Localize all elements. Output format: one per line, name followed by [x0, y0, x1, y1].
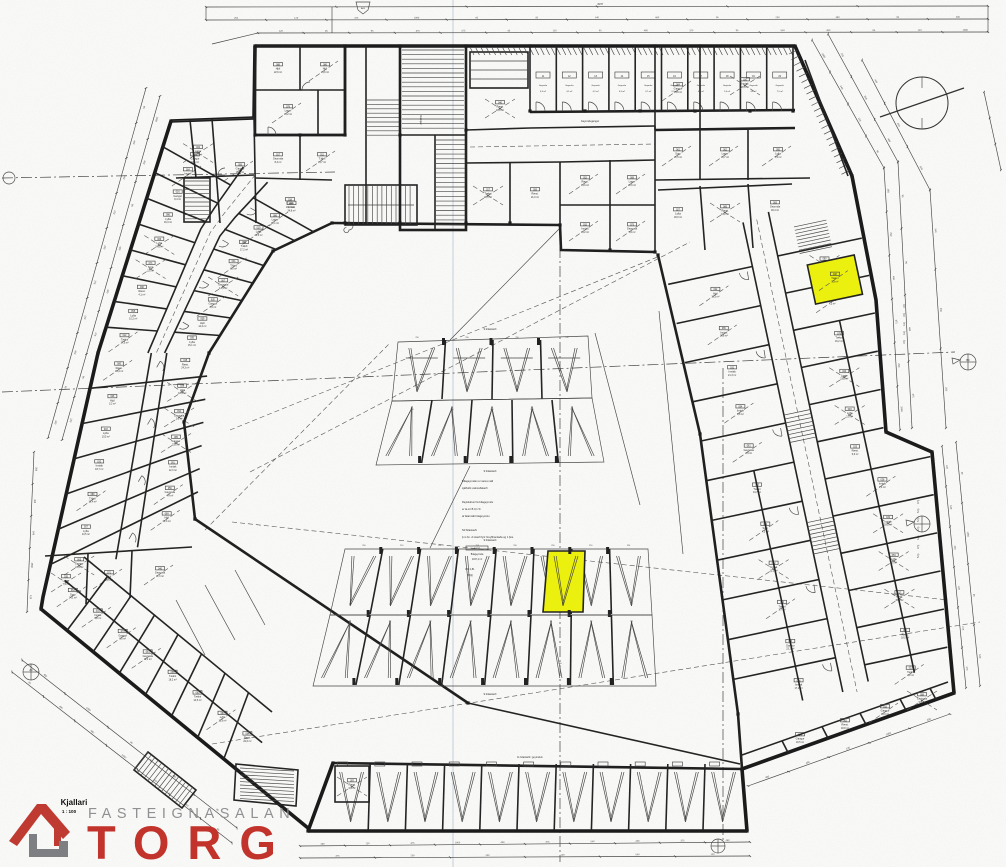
- svg-text:16,2 m²: 16,2 m²: [835, 340, 843, 343]
- svg-text:1060: 1060: [963, 29, 969, 32]
- svg-text:120: 120: [294, 17, 299, 20]
- svg-text:14,5 m²: 14,5 m²: [193, 699, 201, 702]
- svg-text:22,6 m²: 22,6 m²: [243, 740, 251, 743]
- svg-text:460: 460: [320, 843, 325, 846]
- svg-text:16,3 m²: 16,3 m²: [164, 221, 172, 224]
- svg-text:DK 2,81: DK 2,81: [465, 568, 475, 571]
- svg-text:15,4 m²: 15,4 m²: [115, 370, 123, 373]
- svg-text:375: 375: [545, 841, 550, 844]
- svg-text:7,5 m²: 7,5 m²: [777, 90, 783, 93]
- svg-text:5,0 m²: 5,0 m²: [724, 90, 730, 93]
- svg-text:12,3 m²: 12,3 m²: [770, 569, 778, 572]
- svg-text:18,3 m²: 18,3 m²: [178, 392, 186, 395]
- svg-text:14,5 m²: 14,5 m²: [82, 533, 90, 536]
- svg-text:460: 460: [500, 841, 505, 844]
- svg-text:18,2 m²: 18,2 m²: [169, 679, 177, 682]
- svg-text:375: 375: [461, 29, 466, 32]
- svg-text:6,6 m²: 6,6 m²: [852, 453, 859, 456]
- svg-text:14,1 m²: 14,1 m²: [69, 597, 77, 600]
- svg-text:23,5 m²: 23,5 m²: [840, 378, 848, 381]
- svg-text:Geymsla: Geymsla: [697, 85, 706, 87]
- svg-text:13,9 m²: 13,9 m²: [674, 91, 682, 94]
- svg-text:14,5 m²: 14,5 m²: [219, 287, 227, 290]
- svg-text:120: 120: [560, 854, 565, 857]
- svg-text:24,6 m²: 24,6 m²: [321, 71, 329, 74]
- svg-text:4,2 m²: 4,2 m²: [593, 90, 599, 93]
- svg-text:Geymsla: Geymsla: [591, 85, 600, 87]
- svg-text:18,7 m²: 18,7 m²: [95, 468, 103, 471]
- svg-text:460: 460: [725, 839, 730, 842]
- svg-text:Kjallari: Kjallari: [61, 798, 88, 807]
- svg-text:250: 250: [410, 854, 415, 857]
- svg-text:18,8 m²: 18,8 m²: [841, 727, 849, 730]
- svg-text:A0: A0: [29, 668, 33, 672]
- svg-text:540: 540: [590, 840, 595, 843]
- svg-text:21,3 m²: 21,3 m²: [163, 520, 171, 523]
- svg-text:af fatarmáli bílageymslu: af fatarmáli bílageymslu: [462, 514, 490, 518]
- svg-text:4,6 m²: 4,6 m²: [750, 90, 756, 93]
- svg-text:14,7 m²: 14,7 m²: [318, 161, 326, 164]
- svg-text:24,8 m²: 24,8 m²: [287, 210, 295, 213]
- svg-text:16,2 m²: 16,2 m²: [581, 231, 589, 234]
- svg-text:24,5 m²: 24,5 m²: [254, 234, 262, 237]
- svg-text:1060: 1060: [414, 16, 420, 19]
- svg-text:1047,4 m²: 1047,4 m²: [472, 558, 483, 561]
- svg-text:19,8 m²: 19,8 m²: [720, 335, 728, 338]
- svg-text:Geymsla: Geymsla: [749, 85, 758, 87]
- svg-text:540: 540: [635, 853, 640, 856]
- svg-text:120: 120: [365, 842, 370, 845]
- svg-text:TORG: TORG: [87, 816, 294, 867]
- svg-text:460: 460: [956, 16, 961, 19]
- svg-text:460: 460: [836, 16, 841, 19]
- svg-text:Geymslugangur: Geymslugangur: [581, 119, 599, 123]
- svg-text:14,2 m²: 14,2 m²: [198, 325, 206, 328]
- svg-text:4,1 m²: 4,1 m²: [139, 294, 146, 297]
- svg-text:B0: B0: [966, 358, 970, 362]
- svg-text:8,4 m²: 8,4 m²: [174, 198, 181, 201]
- svg-text:Geymsla: Geymsla: [618, 85, 627, 87]
- svg-text:460: 460: [655, 16, 660, 19]
- svg-text:er la-m² B 0,1 %: er la-m² B 0,1 %: [462, 507, 481, 511]
- svg-text:19,0 m²: 19,0 m²: [881, 713, 889, 716]
- svg-text:17,2 m²: 17,2 m²: [795, 687, 803, 690]
- svg-text:11,4 m²: 11,4 m²: [144, 658, 152, 661]
- svg-text:Bílageymsla: Bílageymsla: [471, 554, 484, 556]
- svg-text:16,5 m²: 16,5 m²: [796, 741, 804, 744]
- svg-text:250: 250: [234, 17, 239, 20]
- svg-text:Rampur: Rampur: [419, 115, 423, 124]
- svg-text:10,1 m²: 10,1 m²: [236, 171, 244, 174]
- svg-text:22,6 m²: 22,6 m²: [628, 184, 636, 187]
- svg-text:375: 375: [680, 839, 685, 842]
- svg-text:Geymsla: Geymsla: [723, 85, 732, 87]
- svg-text:8,4 m²: 8,4 m²: [275, 161, 282, 164]
- svg-text:540: 540: [595, 16, 600, 19]
- svg-text:18,0 m²: 18,0 m²: [901, 637, 909, 640]
- svg-text:12,1 m²: 12,1 m²: [271, 222, 279, 225]
- svg-text:13,7 m²: 13,7 m²: [753, 491, 761, 494]
- svg-text:120: 120: [918, 29, 923, 32]
- svg-text:460: 460: [644, 29, 649, 32]
- svg-text:11,3 m²: 11,3 m²: [156, 575, 164, 578]
- svg-text:10,2 m²: 10,2 m²: [129, 318, 137, 321]
- svg-text:13,2 m²: 13,2 m²: [721, 213, 729, 216]
- svg-text:375: 375: [410, 842, 415, 845]
- svg-text:250: 250: [485, 854, 490, 857]
- svg-text:21,3 m²: 21,3 m²: [728, 374, 736, 377]
- svg-text:1060: 1060: [966, 531, 970, 537]
- svg-text:13,2 m²: 13,2 m²: [284, 113, 292, 116]
- svg-text:21,5 m²: 21,5 m²: [674, 156, 682, 159]
- svg-text:Geymsla: Geymsla: [644, 85, 653, 87]
- svg-text:460: 460: [826, 29, 831, 32]
- svg-text:11 bílastæði í geymslum: 11 bílastæði í geymslum: [517, 756, 543, 759]
- svg-text:1060: 1060: [900, 406, 903, 412]
- svg-text:11,9 m²: 11,9 m²: [219, 720, 227, 723]
- svg-text:4,3 m²: 4,3 m²: [619, 90, 625, 93]
- svg-text:14,6 m²: 14,6 m²: [581, 184, 589, 187]
- svg-text:Bílageymslan er sama máli: Bílageymslan er sama máli: [462, 479, 494, 483]
- svg-text:4,4 m²: 4,4 m²: [698, 90, 704, 93]
- svg-text:23,6 m²: 23,6 m²: [75, 566, 83, 569]
- svg-text:4,1 m²: 4,1 m²: [566, 90, 572, 93]
- svg-text:Reykluktun frá bílageymslu: Reykluktun frá bílageymslu: [462, 500, 494, 504]
- svg-text:1 : 100: 1 : 100: [62, 809, 77, 814]
- svg-text:12,3 m²: 12,3 m²: [169, 469, 177, 472]
- svg-text:F0637: F0637: [474, 548, 481, 550]
- svg-text:120: 120: [710, 853, 715, 856]
- svg-text:3,2 m²: 3,2 m²: [109, 403, 116, 406]
- svg-text:1060: 1060: [455, 841, 461, 844]
- svg-text:Geymsla: Geymsla: [776, 85, 785, 87]
- svg-text:20,5 m²: 20,5 m²: [484, 196, 492, 199]
- svg-text:1060: 1060: [30, 562, 33, 568]
- svg-text:375: 375: [354, 17, 359, 20]
- svg-text:375: 375: [335, 855, 340, 858]
- svg-text:540: 540: [781, 29, 786, 32]
- svg-text:24,6 m²: 24,6 m²: [155, 245, 163, 248]
- svg-text:21,0 m²: 21,0 m²: [531, 196, 539, 199]
- svg-text:375: 375: [689, 29, 694, 32]
- svg-text:250: 250: [635, 840, 640, 843]
- svg-text:10,5 m²: 10,5 m²: [102, 435, 110, 438]
- svg-text:6,3 m²: 6,3 m²: [540, 90, 546, 93]
- svg-text:23,1 m²: 23,1 m²: [786, 648, 794, 651]
- svg-text:Geymsla: Geymsla: [539, 85, 548, 87]
- svg-text:18,4 m²: 18,4 m²: [771, 209, 779, 212]
- svg-text:120: 120: [553, 29, 558, 32]
- svg-text:16,7 m²: 16,7 m²: [721, 156, 729, 159]
- svg-text:18,5 m²: 18,5 m²: [711, 296, 719, 299]
- svg-text:20,5 m²: 20,5 m²: [884, 524, 892, 527]
- svg-text:250: 250: [775, 16, 780, 19]
- svg-text:21,6 m²: 21,6 m²: [741, 86, 749, 89]
- svg-text:18,0 m²: 18,0 m²: [674, 216, 682, 219]
- svg-text:22,9 m²: 22,9 m²: [274, 71, 282, 74]
- svg-text:23,6 m²: 23,6 m²: [172, 443, 180, 446]
- svg-text:4978: 4978: [597, 2, 603, 6]
- svg-text:17,2 m²: 17,2 m²: [240, 249, 248, 252]
- svg-text:17,5 m²: 17,5 m²: [120, 342, 128, 345]
- svg-text:Geymsla: Geymsla: [565, 85, 574, 87]
- svg-text:10,6 m²: 10,6 m²: [496, 109, 504, 112]
- svg-text:120: 120: [279, 30, 284, 33]
- svg-text:3,7 m²: 3,7 m²: [645, 90, 651, 93]
- svg-text:OK(ji): OK(ji): [467, 575, 473, 577]
- svg-text:24,3 m²: 24,3 m²: [181, 367, 189, 370]
- svg-text:18,4 m²: 18,4 m²: [88, 501, 96, 504]
- svg-text:375: 375: [416, 30, 421, 33]
- svg-text:15,1 m²: 15,1 m²: [188, 344, 196, 347]
